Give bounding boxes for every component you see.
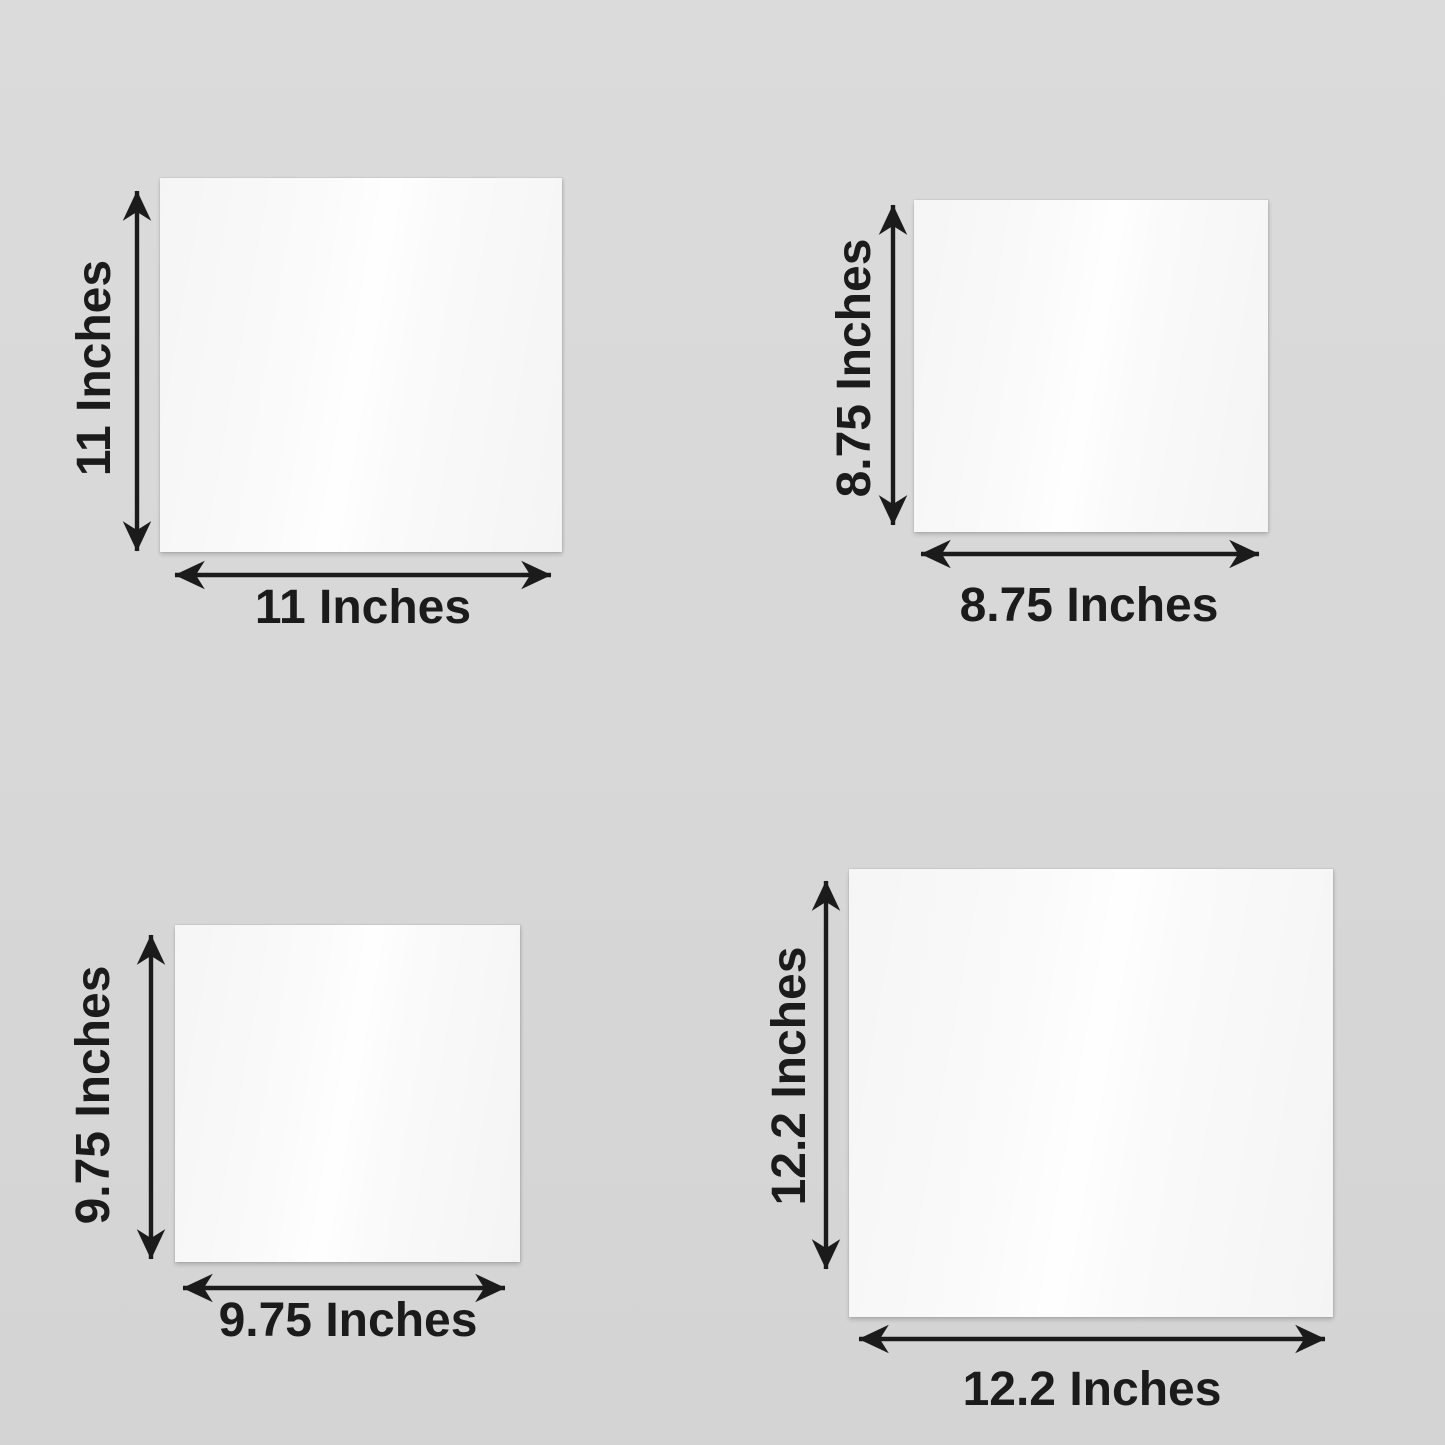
height-label-9-75in: 9.75 Inches: [64, 935, 124, 1255]
width-label-11in: 11 Inches: [203, 578, 523, 638]
size-chart-diagram: 11 Inches 11 Inches 8.75 Inches 8.75 Inc…: [0, 0, 1445, 1445]
height-arrow-9-75in: [131, 928, 171, 1266]
width-arrow-12-2in: [852, 1319, 1332, 1359]
height-label-12-2in: 12.2 Inches: [760, 916, 820, 1236]
acrylic-sheet-9-75in: [175, 925, 520, 1262]
width-label-9-75in: 9.75 Inches: [188, 1291, 508, 1351]
acrylic-sheet-8-75in: [914, 200, 1268, 532]
acrylic-sheet-12-2in: [849, 869, 1333, 1317]
width-label-8-75in: 8.75 Inches: [929, 576, 1249, 636]
height-label-11in: 11 Inches: [65, 208, 125, 528]
height-label-8-75in: 8.75 Inches: [825, 208, 885, 528]
width-arrow-8-75in: [914, 534, 1266, 574]
acrylic-sheet-11in: [160, 178, 562, 552]
width-label-12-2in: 12.2 Inches: [932, 1360, 1252, 1420]
